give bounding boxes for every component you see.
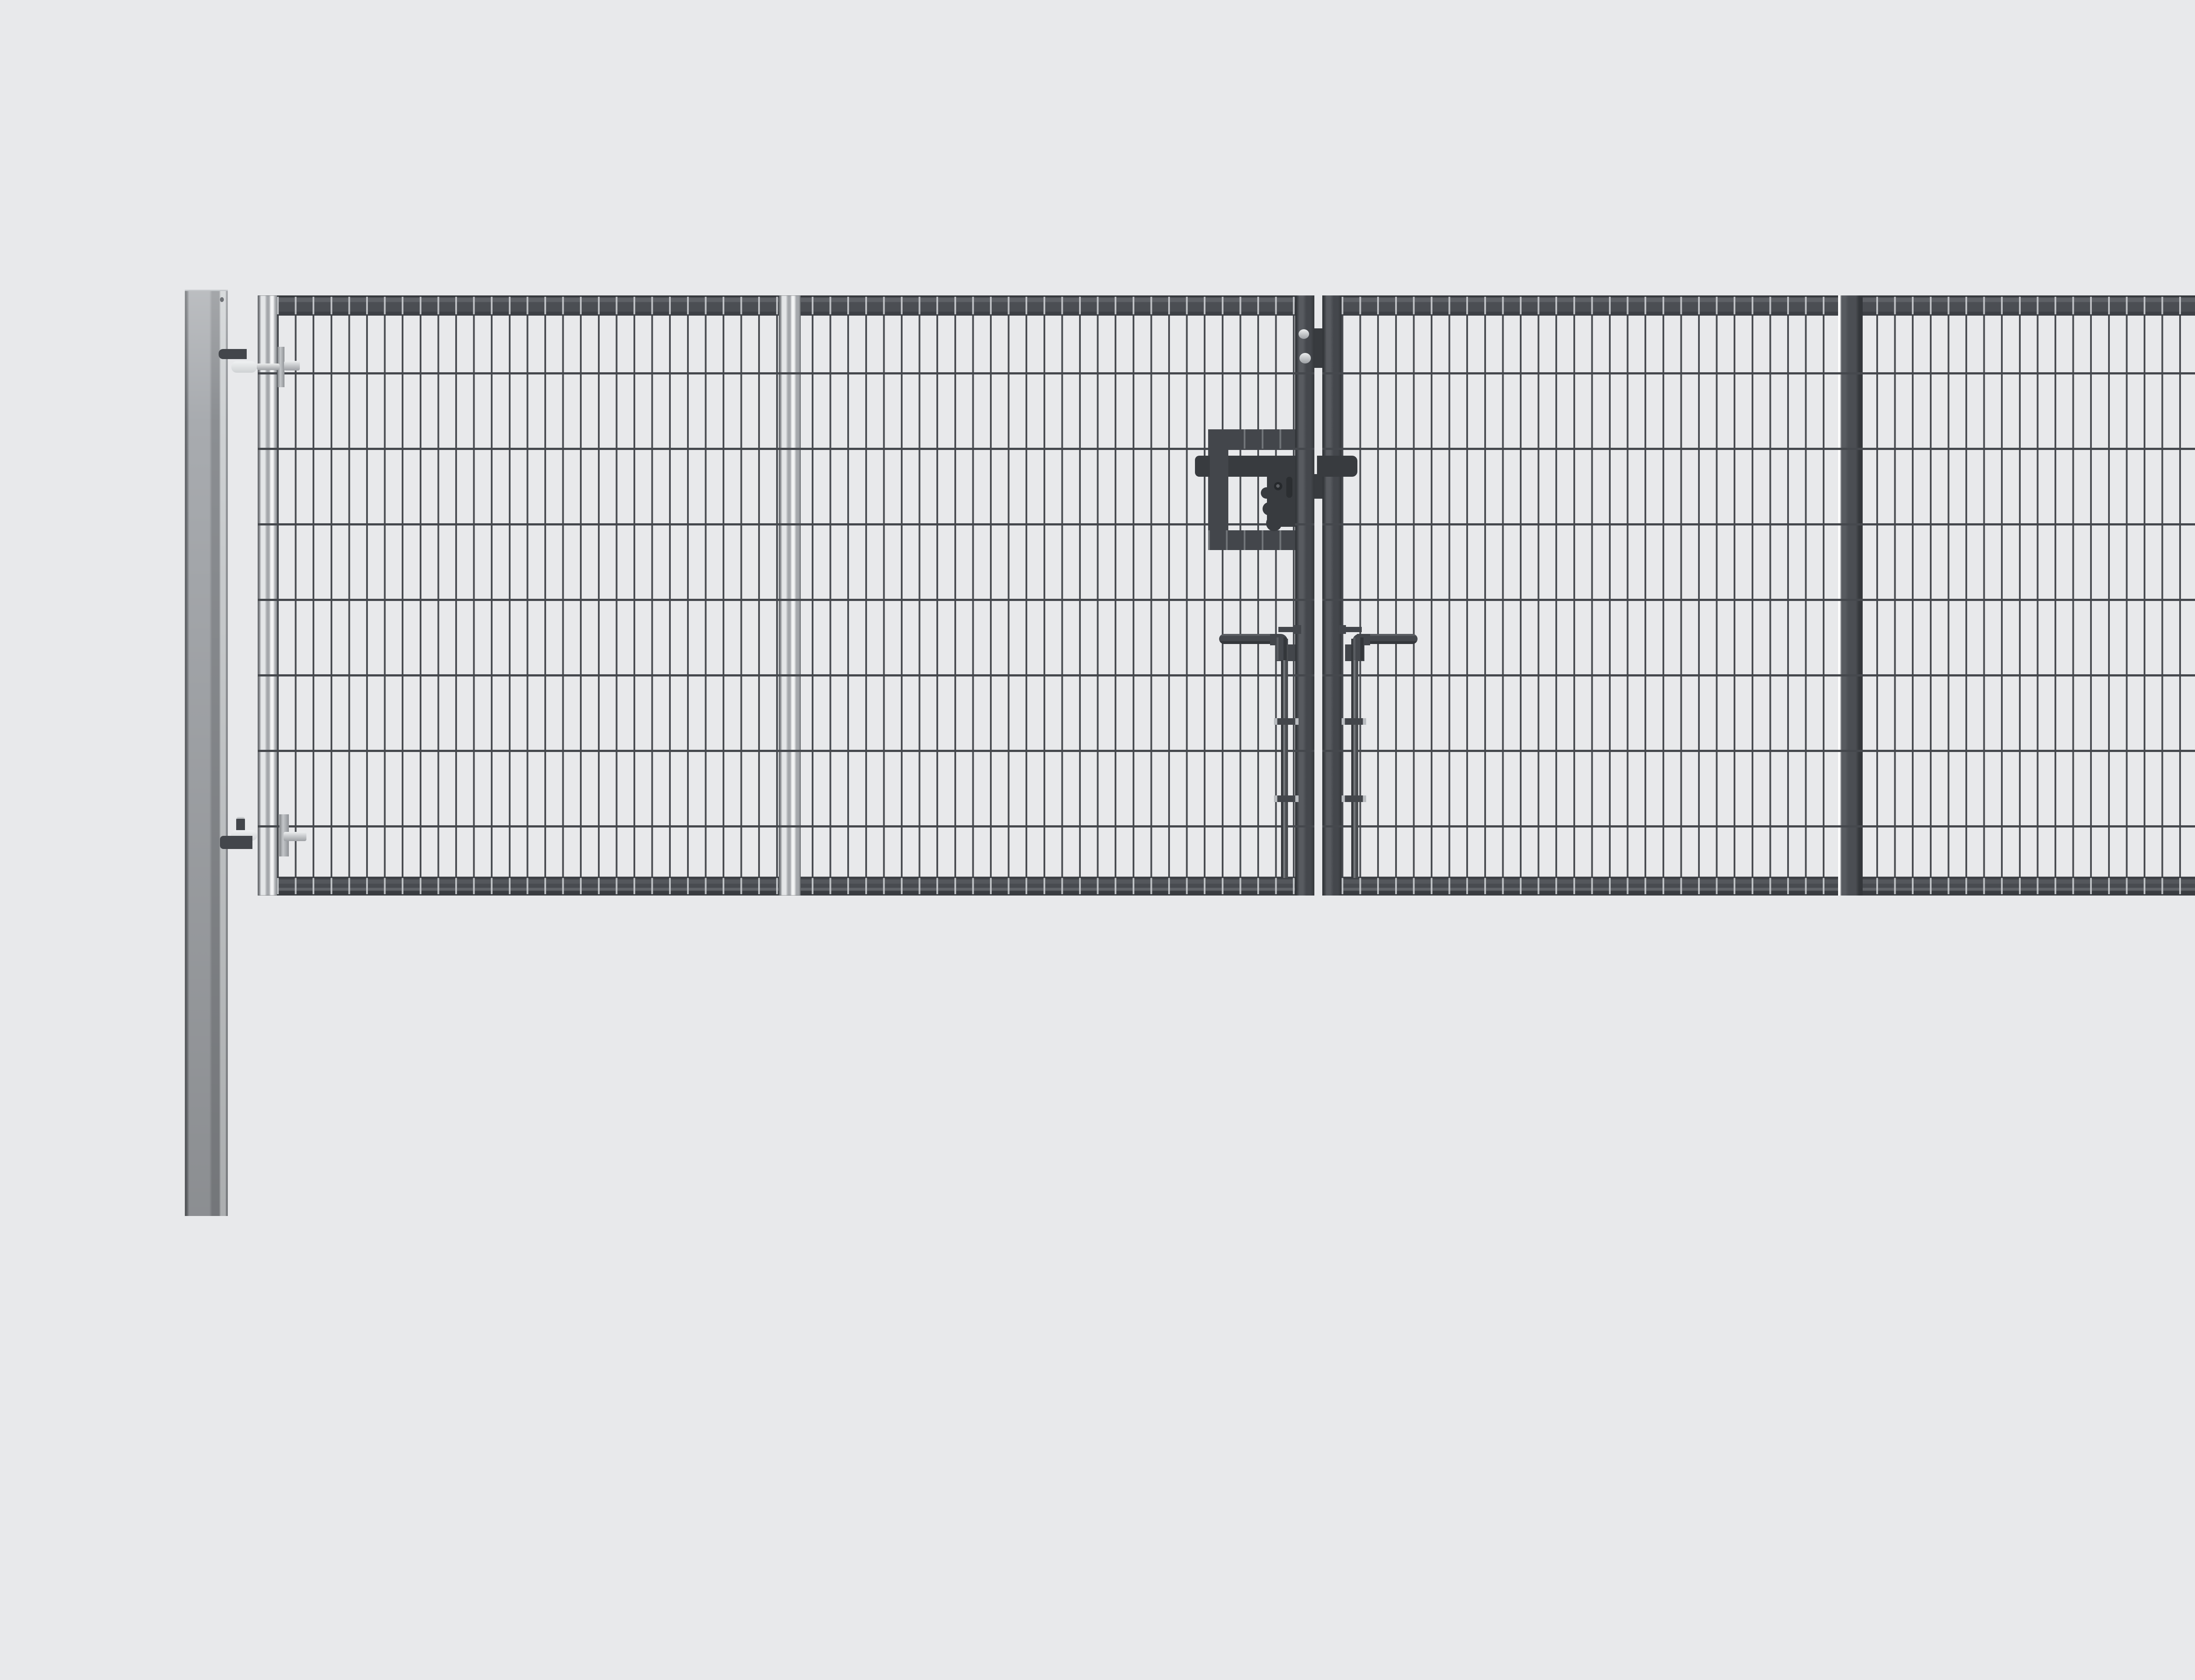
lock-box (1185, 421, 1370, 558)
drop-rod-clamp (1274, 795, 1299, 802)
mesh-wire-stubs-over-top-rail (1342, 297, 2195, 314)
product-photo-double-mesh-gate (0, 0, 2195, 1680)
lock-plate-scallop (1263, 502, 1276, 515)
keyhole (1274, 482, 1282, 490)
hinge-bracket (219, 349, 247, 359)
euro-cylinder-cutout (1286, 477, 1292, 498)
stile-bolt-head (1299, 353, 1311, 363)
mesh-horizontal-wires (1322, 316, 2195, 877)
mesh-horizontal-wires (258, 316, 1314, 877)
center-gap-block-top (1314, 328, 1322, 368)
fence-post-left (185, 290, 228, 1216)
handle-tube-vertical (1353, 637, 1364, 660)
drop-rod-left (1281, 639, 1288, 878)
lock-plate-horizontal (1228, 456, 1295, 477)
gate-wing-left (258, 295, 1314, 896)
drop-rod-clamp (1342, 718, 1366, 725)
mesh-wire-stubs-over-bottom-rail (1342, 878, 2195, 894)
hinge-upper-left (215, 338, 307, 391)
drop-rod-guide-block (1294, 625, 1301, 634)
lock-frame-bottom-bar (1208, 530, 1295, 550)
stile-bolt-head (1299, 329, 1309, 339)
lock-plate-scallop (1261, 487, 1272, 499)
hinge-bolt (257, 363, 280, 370)
hinge-nut (284, 361, 300, 371)
hinge-lower-left (215, 812, 312, 860)
drop-rod-clamp (1342, 795, 1366, 802)
post-screw-hole (220, 297, 224, 302)
hinge-nylon-bushing (231, 361, 257, 373)
hinge-bracket (220, 836, 252, 849)
gate-wing-right (1322, 295, 2195, 896)
drop-rod-clamp (1274, 718, 1299, 725)
handle-tube-vertical (1277, 637, 1287, 660)
hinge-bolt-nut (284, 832, 306, 841)
drop-rod-guide-block (1339, 625, 1346, 634)
latch-keeper-bar (1317, 456, 1357, 477)
drop-rod-right (1351, 639, 1358, 878)
lock-plate-scallop (1266, 515, 1282, 531)
slide-bolt-end-tab (1195, 456, 1210, 477)
